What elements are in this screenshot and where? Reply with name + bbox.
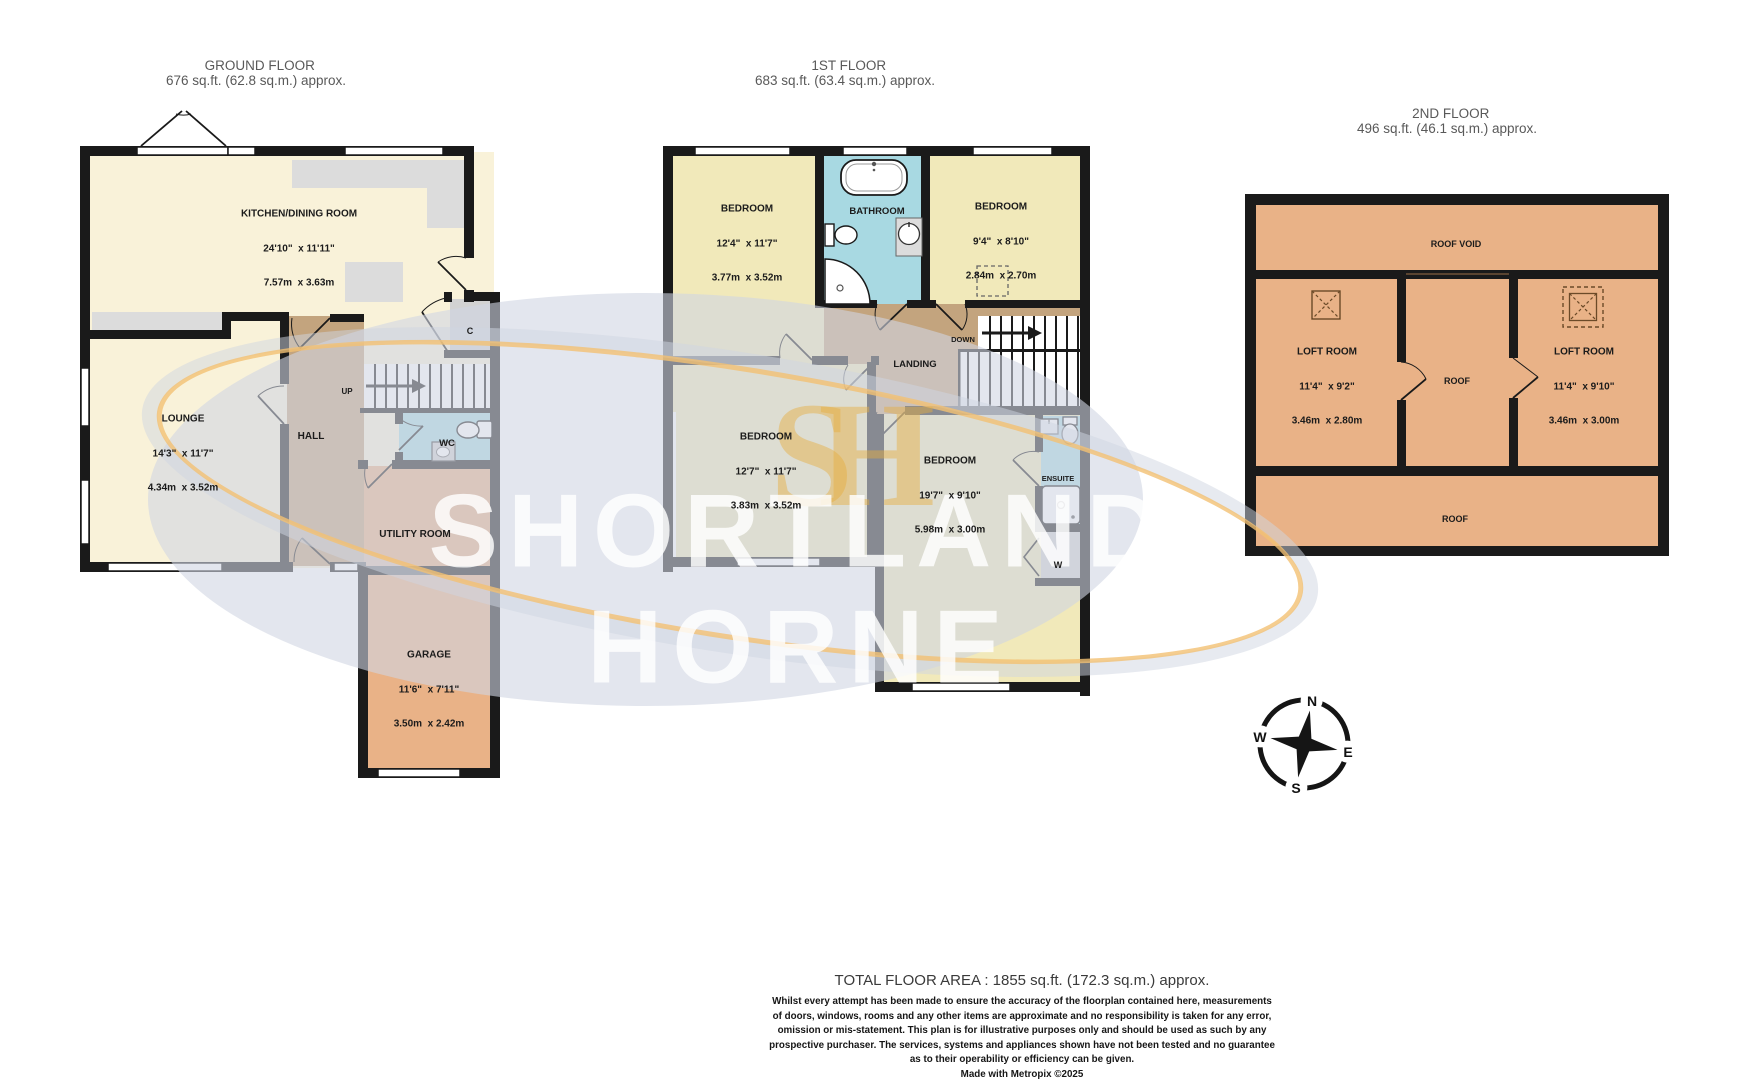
- second-floor-title: 2ND FLOOR496 sq.ft. (46.1 sq.m.) approx.: [1357, 90, 1537, 137]
- compass-north-label: N: [1307, 693, 1317, 709]
- disclaimer-line: of doors, windows, rooms and any other i…: [769, 1010, 1275, 1025]
- compass-south-label: S: [1291, 780, 1300, 796]
- bathroom-label: BATHROOM: [849, 183, 904, 229]
- roof-bottom-label: ROOF: [1442, 491, 1468, 537]
- compass-east-label: E: [1343, 744, 1352, 760]
- stairs-up: [364, 364, 490, 408]
- bedroom4-label: BEDROOM 19'7" x 9'10" 5.98m x 3.00m: [915, 433, 986, 548]
- hall-label: HALL: [298, 408, 325, 454]
- first-floor-title: 1ST FLOOR683 sq.ft. (63.4 sq.m.) approx.: [755, 42, 935, 89]
- stairs-up-label: UP: [341, 363, 352, 409]
- footer: TOTAL FLOOR AREA : 1855 sq.ft. (172.3 sq…: [769, 972, 1275, 1080]
- kitchen-label: KITCHEN/DINING ROOM 24'10" x 11'11" 7.57…: [241, 186, 357, 301]
- bedroom1-label: BEDROOM 12'4" x 11'7" 3.77m x 3.52m: [712, 181, 783, 296]
- total-floor-area: TOTAL FLOOR AREA : 1855 sq.ft. (172.3 sq…: [769, 972, 1275, 989]
- wc-label: WC: [439, 415, 455, 461]
- compass-rose-icon: N E S W: [1250, 690, 1359, 799]
- garage-label: GARAGE 11'6" x 7'11" 3.50m x 2.42m: [394, 627, 465, 742]
- bedroom3-label: BEDROOM 12'7" x 11'7" 3.83m x 3.52m: [731, 409, 802, 524]
- floorplan-graphics: N E S W: [0, 0, 1748, 1080]
- lounge-label: LOUNGE 14'3" x 11'7" 4.34m x 3.52m: [148, 391, 219, 506]
- roof-mid-label: ROOF: [1444, 353, 1470, 399]
- metropix-credit: Made with Metropix ©2025: [769, 1068, 1275, 1080]
- bedroom2-label: BEDROOM 9'4" x 8'10" 2.84m x 2.70m: [966, 179, 1037, 294]
- skylight-icon: [1563, 287, 1603, 327]
- ground-floor-title: GROUND FLOOR676 sq.ft. (62.8 sq.m.) appr…: [166, 42, 346, 89]
- utility-label: UTILITY ROOM: [379, 506, 450, 552]
- floorplan-page: N E S W SH SHORTLAND HORNE GROUND FLOOR6…: [0, 0, 1748, 1080]
- disclaimer-line: as to their operability or efficiency ca…: [769, 1053, 1275, 1068]
- disclaimer-line: Whilst every attempt has been made to en…: [769, 995, 1275, 1010]
- ensuite-label: ENSUITE: [1042, 450, 1075, 496]
- landing-label: LANDING: [893, 336, 936, 382]
- cupboard-label: C: [467, 303, 474, 349]
- compass-west-label: W: [1253, 729, 1267, 745]
- wardrobe-label: W: [1054, 537, 1063, 583]
- disclaimer-line: prospective purchaser. The services, sys…: [769, 1039, 1275, 1054]
- disclaimer-line: omission or mis-statement. This plan is …: [769, 1024, 1275, 1039]
- loft-room-left-label: LOFT ROOM 11'4" x 9'2" 3.46m x 2.80m: [1292, 324, 1363, 439]
- toilet-icon: [457, 421, 492, 438]
- loft-room-right-label: LOFT ROOM 11'4" x 9'10" 3.46m x 3.00m: [1549, 324, 1620, 439]
- disclaimer: Whilst every attempt has been made to en…: [769, 995, 1275, 1080]
- stairs-down-label: DOWN: [951, 311, 975, 357]
- roof-void-label: ROOF VOID: [1431, 216, 1482, 262]
